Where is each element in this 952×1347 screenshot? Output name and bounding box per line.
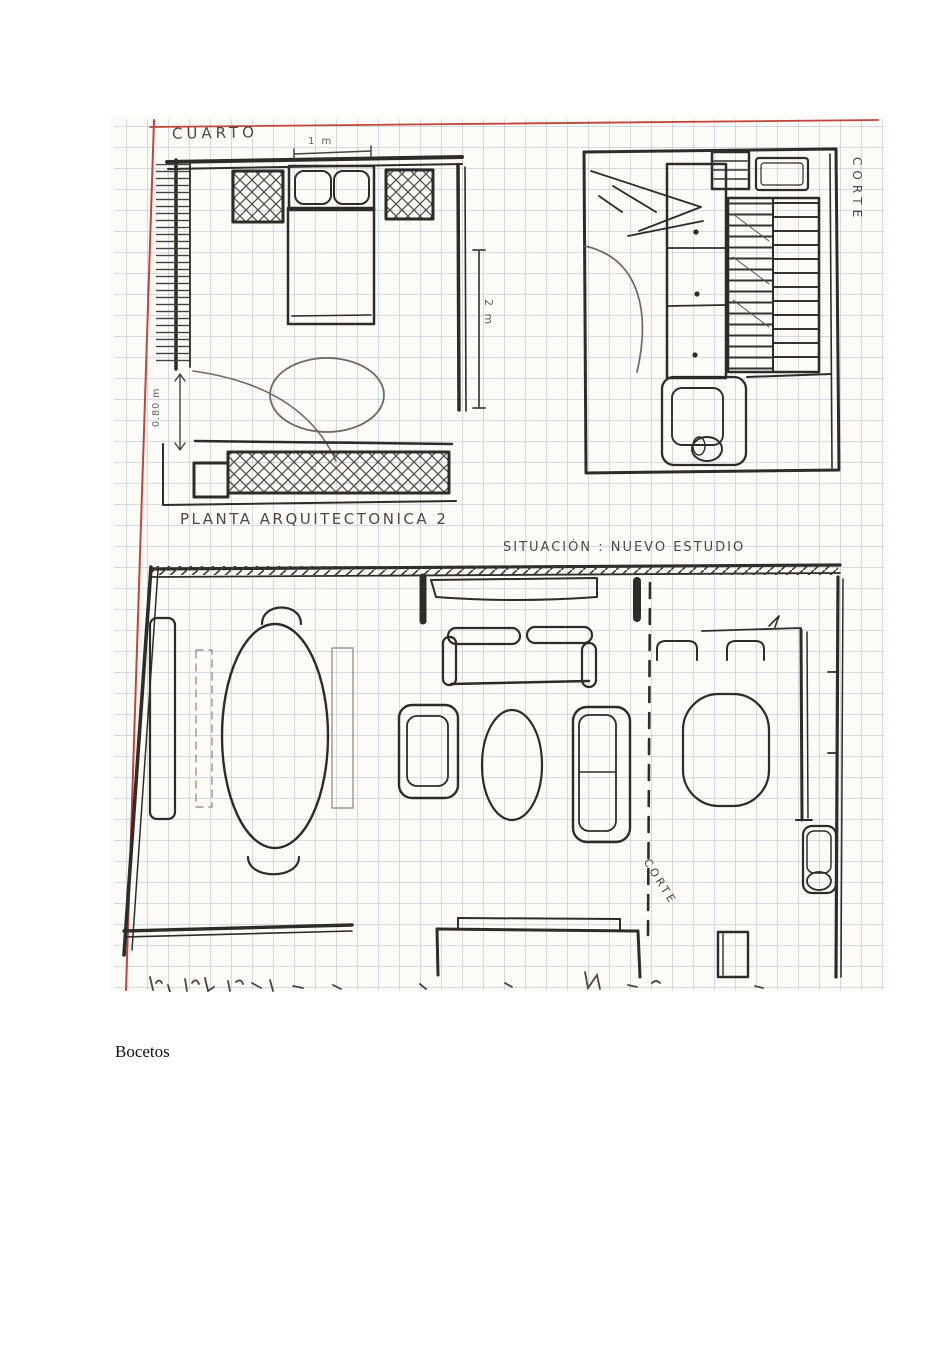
nightstand-left: [233, 171, 283, 222]
figure-caption: Bocetos: [115, 1042, 170, 1062]
label-cuarto: CUARTO: [172, 125, 258, 141]
label-dim-1m: 1 m: [308, 137, 333, 147]
staircase: [728, 198, 819, 372]
label-dim-080m: 0.80 m: [152, 388, 162, 427]
sketch-scan: CUARTO 1 m 2 m 0.80 m PLANTA ARQUITECTON…: [110, 115, 888, 992]
nightstand-right: [386, 170, 433, 219]
label-corte-top: CORTE: [851, 157, 863, 222]
label-dim-2m: 2 m: [483, 299, 494, 326]
document-page: CUARTO 1 m 2 m 0.80 m PLANTA ARQUITECTON…: [0, 0, 952, 1347]
label-planta-arquitectonica: PLANTA ARQUITECTONICA 2: [180, 512, 448, 527]
sketch-svg: [110, 115, 888, 992]
label-situacion: SITUACIÓN : NUEVO ESTUDIO: [503, 541, 745, 554]
